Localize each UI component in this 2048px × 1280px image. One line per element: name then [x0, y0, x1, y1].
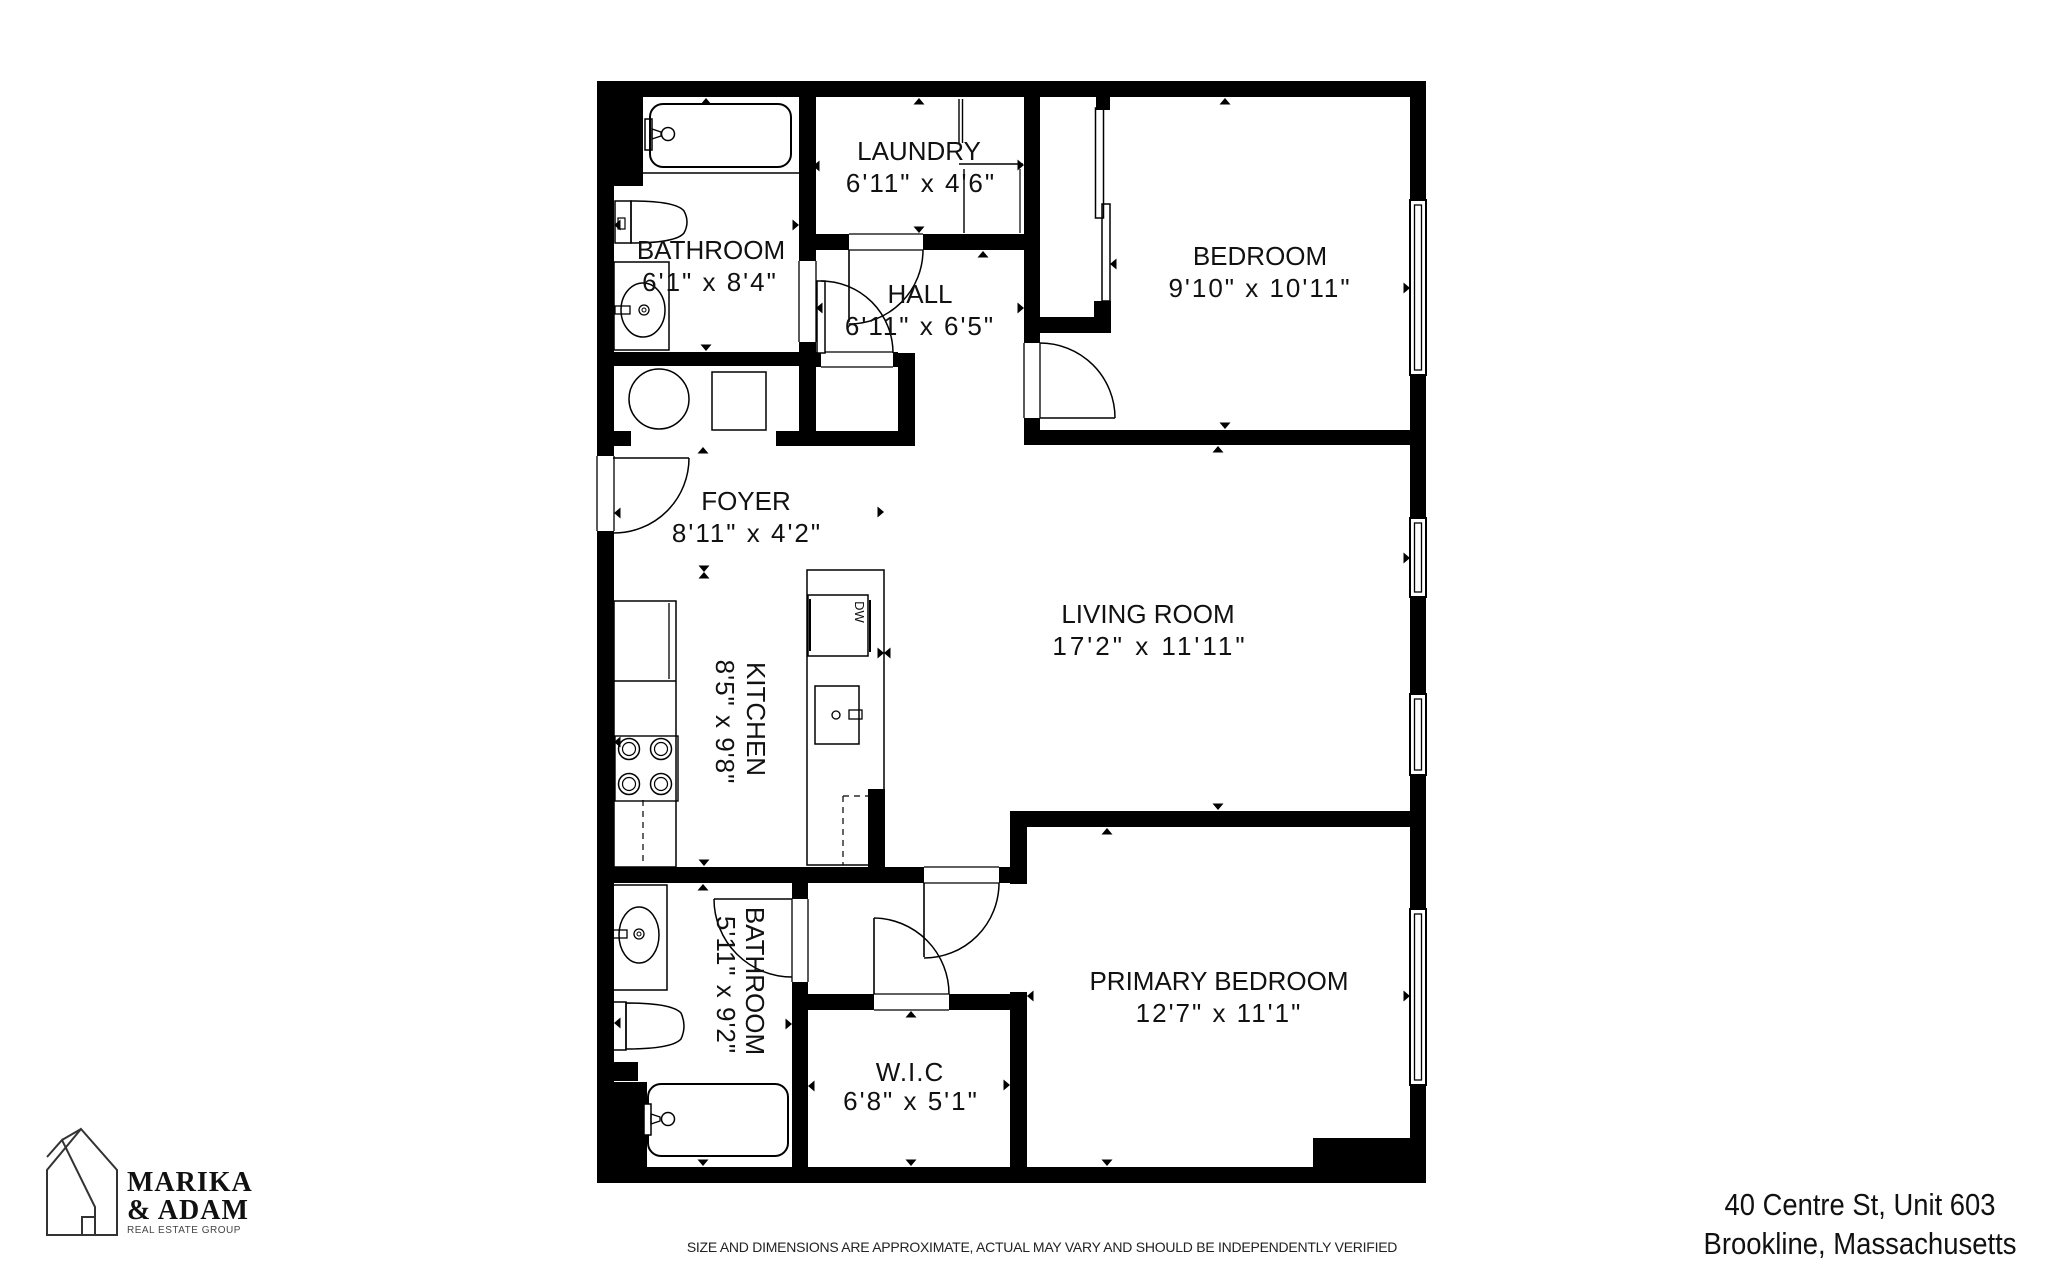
- svg-text:LIVING ROOM: LIVING ROOM: [1061, 599, 1234, 629]
- svg-text:BATHROOM: BATHROOM: [637, 235, 785, 265]
- svg-text:6'11" x 4'6": 6'11" x 4'6": [846, 168, 996, 198]
- svg-text:MARIKA: MARIKA: [127, 1167, 253, 1198]
- svg-text:KITCHEN: KITCHEN: [741, 662, 771, 776]
- svg-text:8'11" x 4'2": 8'11" x 4'2": [672, 518, 822, 548]
- svg-text:FOYER: FOYER: [701, 486, 791, 516]
- svg-text:8'5" x 9'8": 8'5" x 9'8": [710, 660, 740, 785]
- svg-text:6'8" x 5'1": 6'8" x 5'1": [843, 1086, 979, 1116]
- svg-text:& ADAM: & ADAM: [127, 1195, 249, 1226]
- svg-text:HALL: HALL: [887, 279, 952, 309]
- svg-text:BATHROOM: BATHROOM: [740, 907, 770, 1055]
- svg-text:W.I.C: W.I.C: [876, 1057, 945, 1087]
- svg-text:6'1" x 8'4": 6'1" x 8'4": [642, 267, 778, 297]
- svg-text:PRIMARY BEDROOM: PRIMARY BEDROOM: [1089, 966, 1348, 996]
- svg-text:LAUNDRY: LAUNDRY: [857, 136, 981, 166]
- svg-text:DW: DW: [852, 601, 867, 623]
- svg-text:BEDROOM: BEDROOM: [1193, 241, 1327, 271]
- svg-text:40 Centre St, Unit 603: 40 Centre St, Unit 603: [1725, 1187, 1996, 1222]
- svg-text:SIZE AND DIMENSIONS ARE APPROX: SIZE AND DIMENSIONS ARE APPROXIMATE, ACT…: [687, 1239, 1397, 1255]
- svg-text:REAL ESTATE GROUP: REAL ESTATE GROUP: [127, 1225, 241, 1236]
- svg-text:17'2" x 11'11": 17'2" x 11'11": [1052, 631, 1247, 661]
- svg-text:12'7" x 11'1": 12'7" x 11'1": [1136, 998, 1303, 1028]
- svg-text:9'10" x 10'11": 9'10" x 10'11": [1168, 273, 1351, 303]
- svg-text:Brookline, Massachusetts: Brookline, Massachusetts: [1704, 1226, 2017, 1261]
- svg-text:5'11" x 9'2": 5'11" x 9'2": [711, 916, 741, 1054]
- svg-text:6'11" x 6'5": 6'11" x 6'5": [845, 311, 995, 341]
